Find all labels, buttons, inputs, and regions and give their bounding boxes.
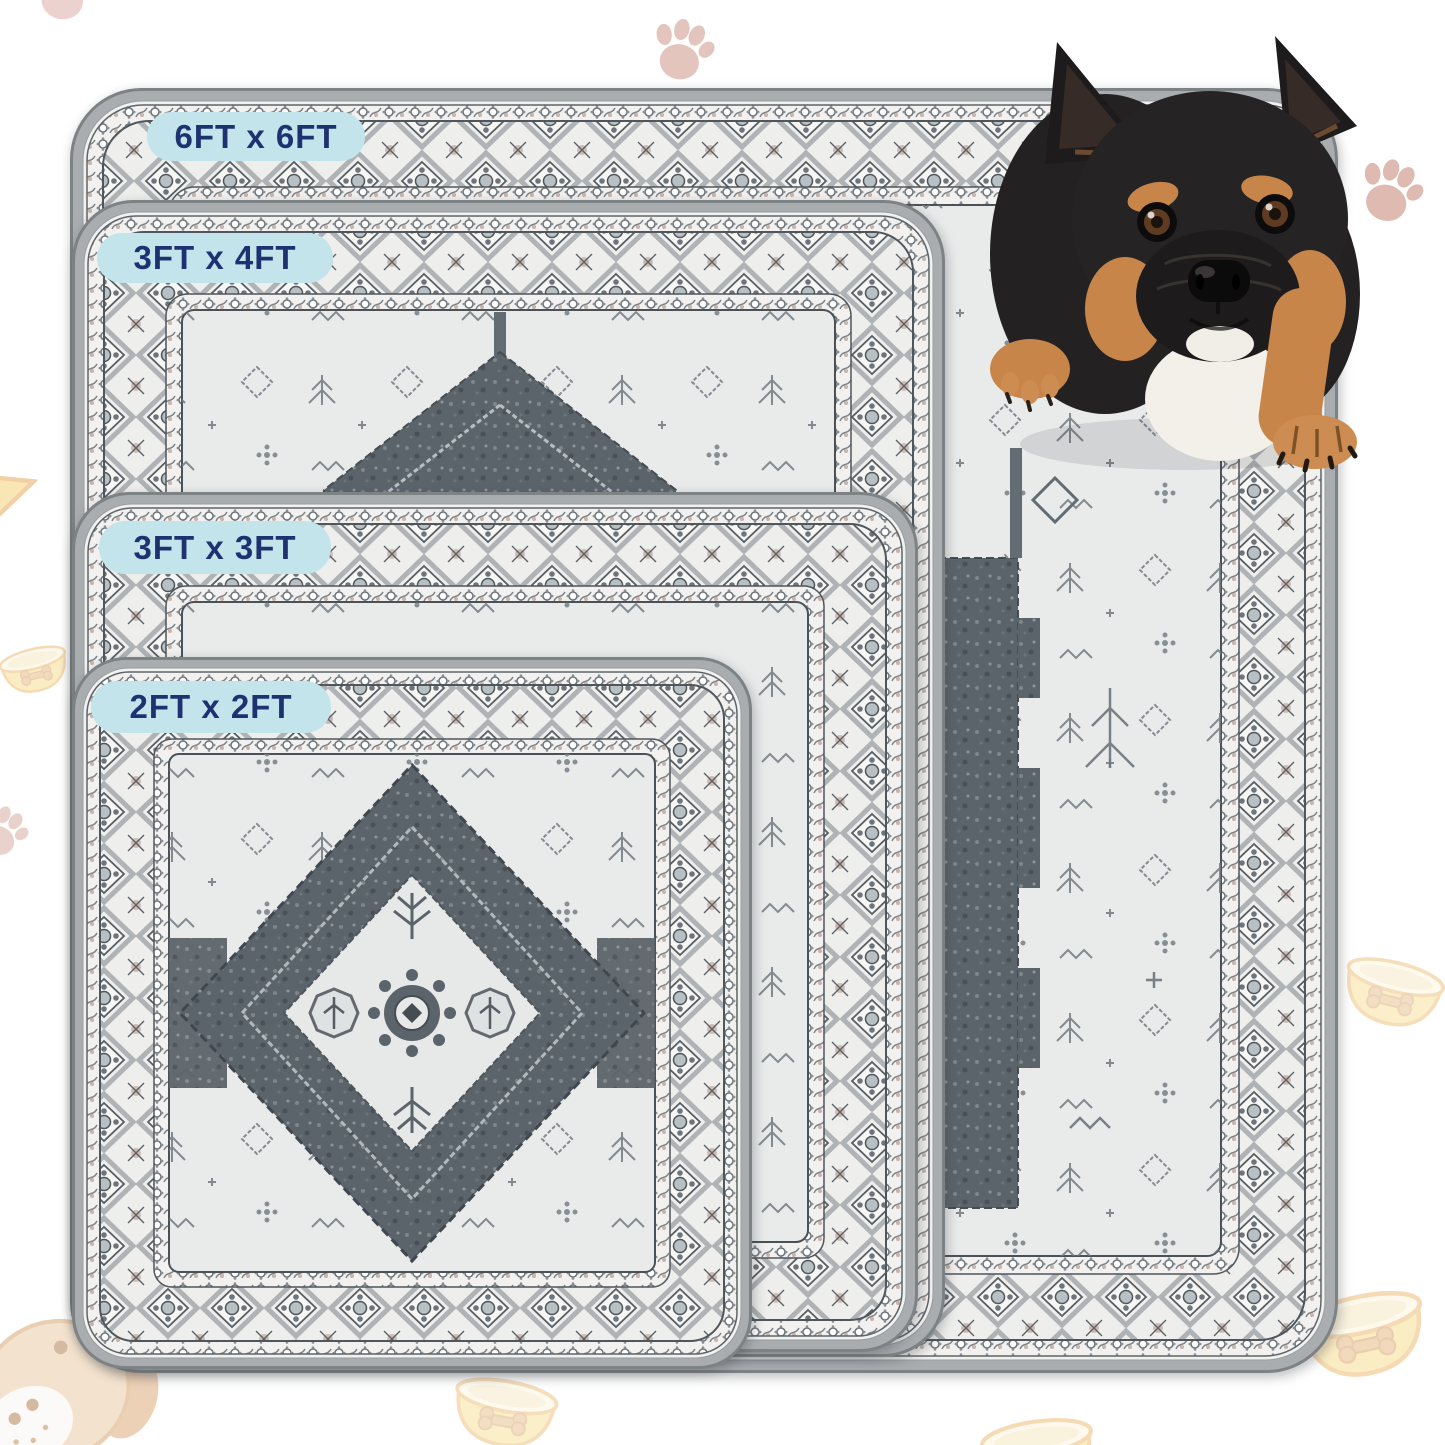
size-label-2x2-text: 2FT x 2FT <box>129 688 292 726</box>
paw-print-icon <box>637 0 730 94</box>
paw-print-icon <box>0 789 43 870</box>
size-label-3x4: 3FT x 4FT <box>97 233 333 283</box>
rug-size-comparison-image: 6FT x 6FT 3FT x 4FT <box>0 0 1445 1445</box>
size-label-3x4-text: 3FT x 4FT <box>133 239 296 277</box>
dog-bowl-bone-icon <box>1329 938 1445 1048</box>
paw-print-icon <box>19 0 112 31</box>
size-label-6x6-text: 6FT x 6FT <box>174 118 337 156</box>
size-label-3x3: 3FT x 3FT <box>99 521 331 574</box>
dog-bowl-bone-icon <box>972 1400 1106 1445</box>
dog-bowl-bone-icon <box>0 632 78 708</box>
nacho-chip-icon <box>0 463 44 534</box>
rug-2ft-x-2ft: 2FT x 2FT <box>72 657 752 1369</box>
size-label-2x2: 2FT x 2FT <box>91 681 331 733</box>
size-label-3x3-text: 3FT x 3FT <box>133 529 296 567</box>
french-bulldog-photo <box>985 14 1370 476</box>
size-label-6x6: 6FT x 6FT <box>147 112 365 161</box>
